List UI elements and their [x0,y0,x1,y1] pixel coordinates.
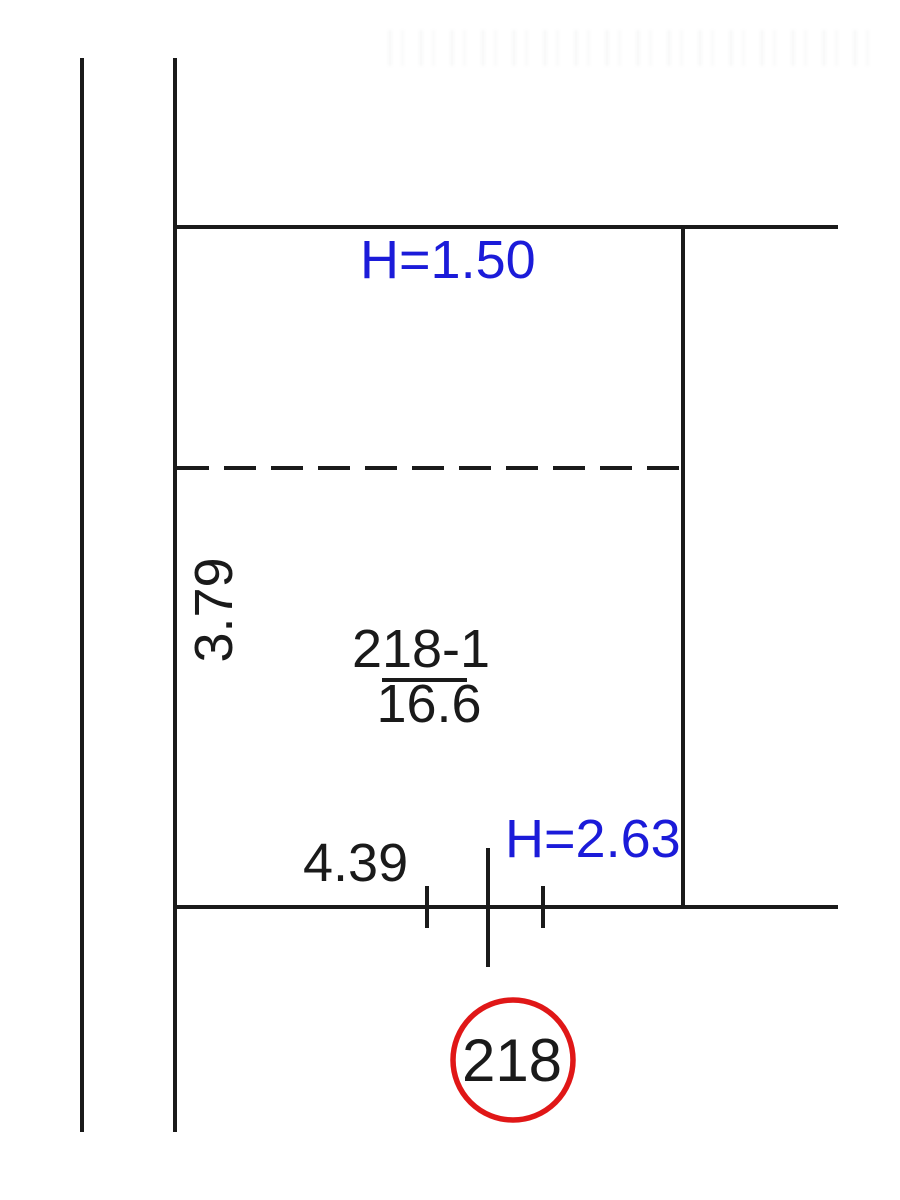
parcel-number-label: 218-1 [352,622,490,676]
cadastral-plan-canvas: H=1.50 3.79 218-1 16.6 4.39 H=2.63 218 [0,0,900,1200]
plan-linework [0,0,900,1200]
parcel-area-label: 16.6 [376,677,481,731]
height-label-upper: H=1.50 [360,233,536,287]
height-label-lower: H=2.63 [505,812,681,866]
bottom-dimension-label: 4.39 [303,836,408,890]
survey-point-number-label: 218 [462,1031,562,1091]
side-dimension-label: 3.79 [187,557,241,662]
